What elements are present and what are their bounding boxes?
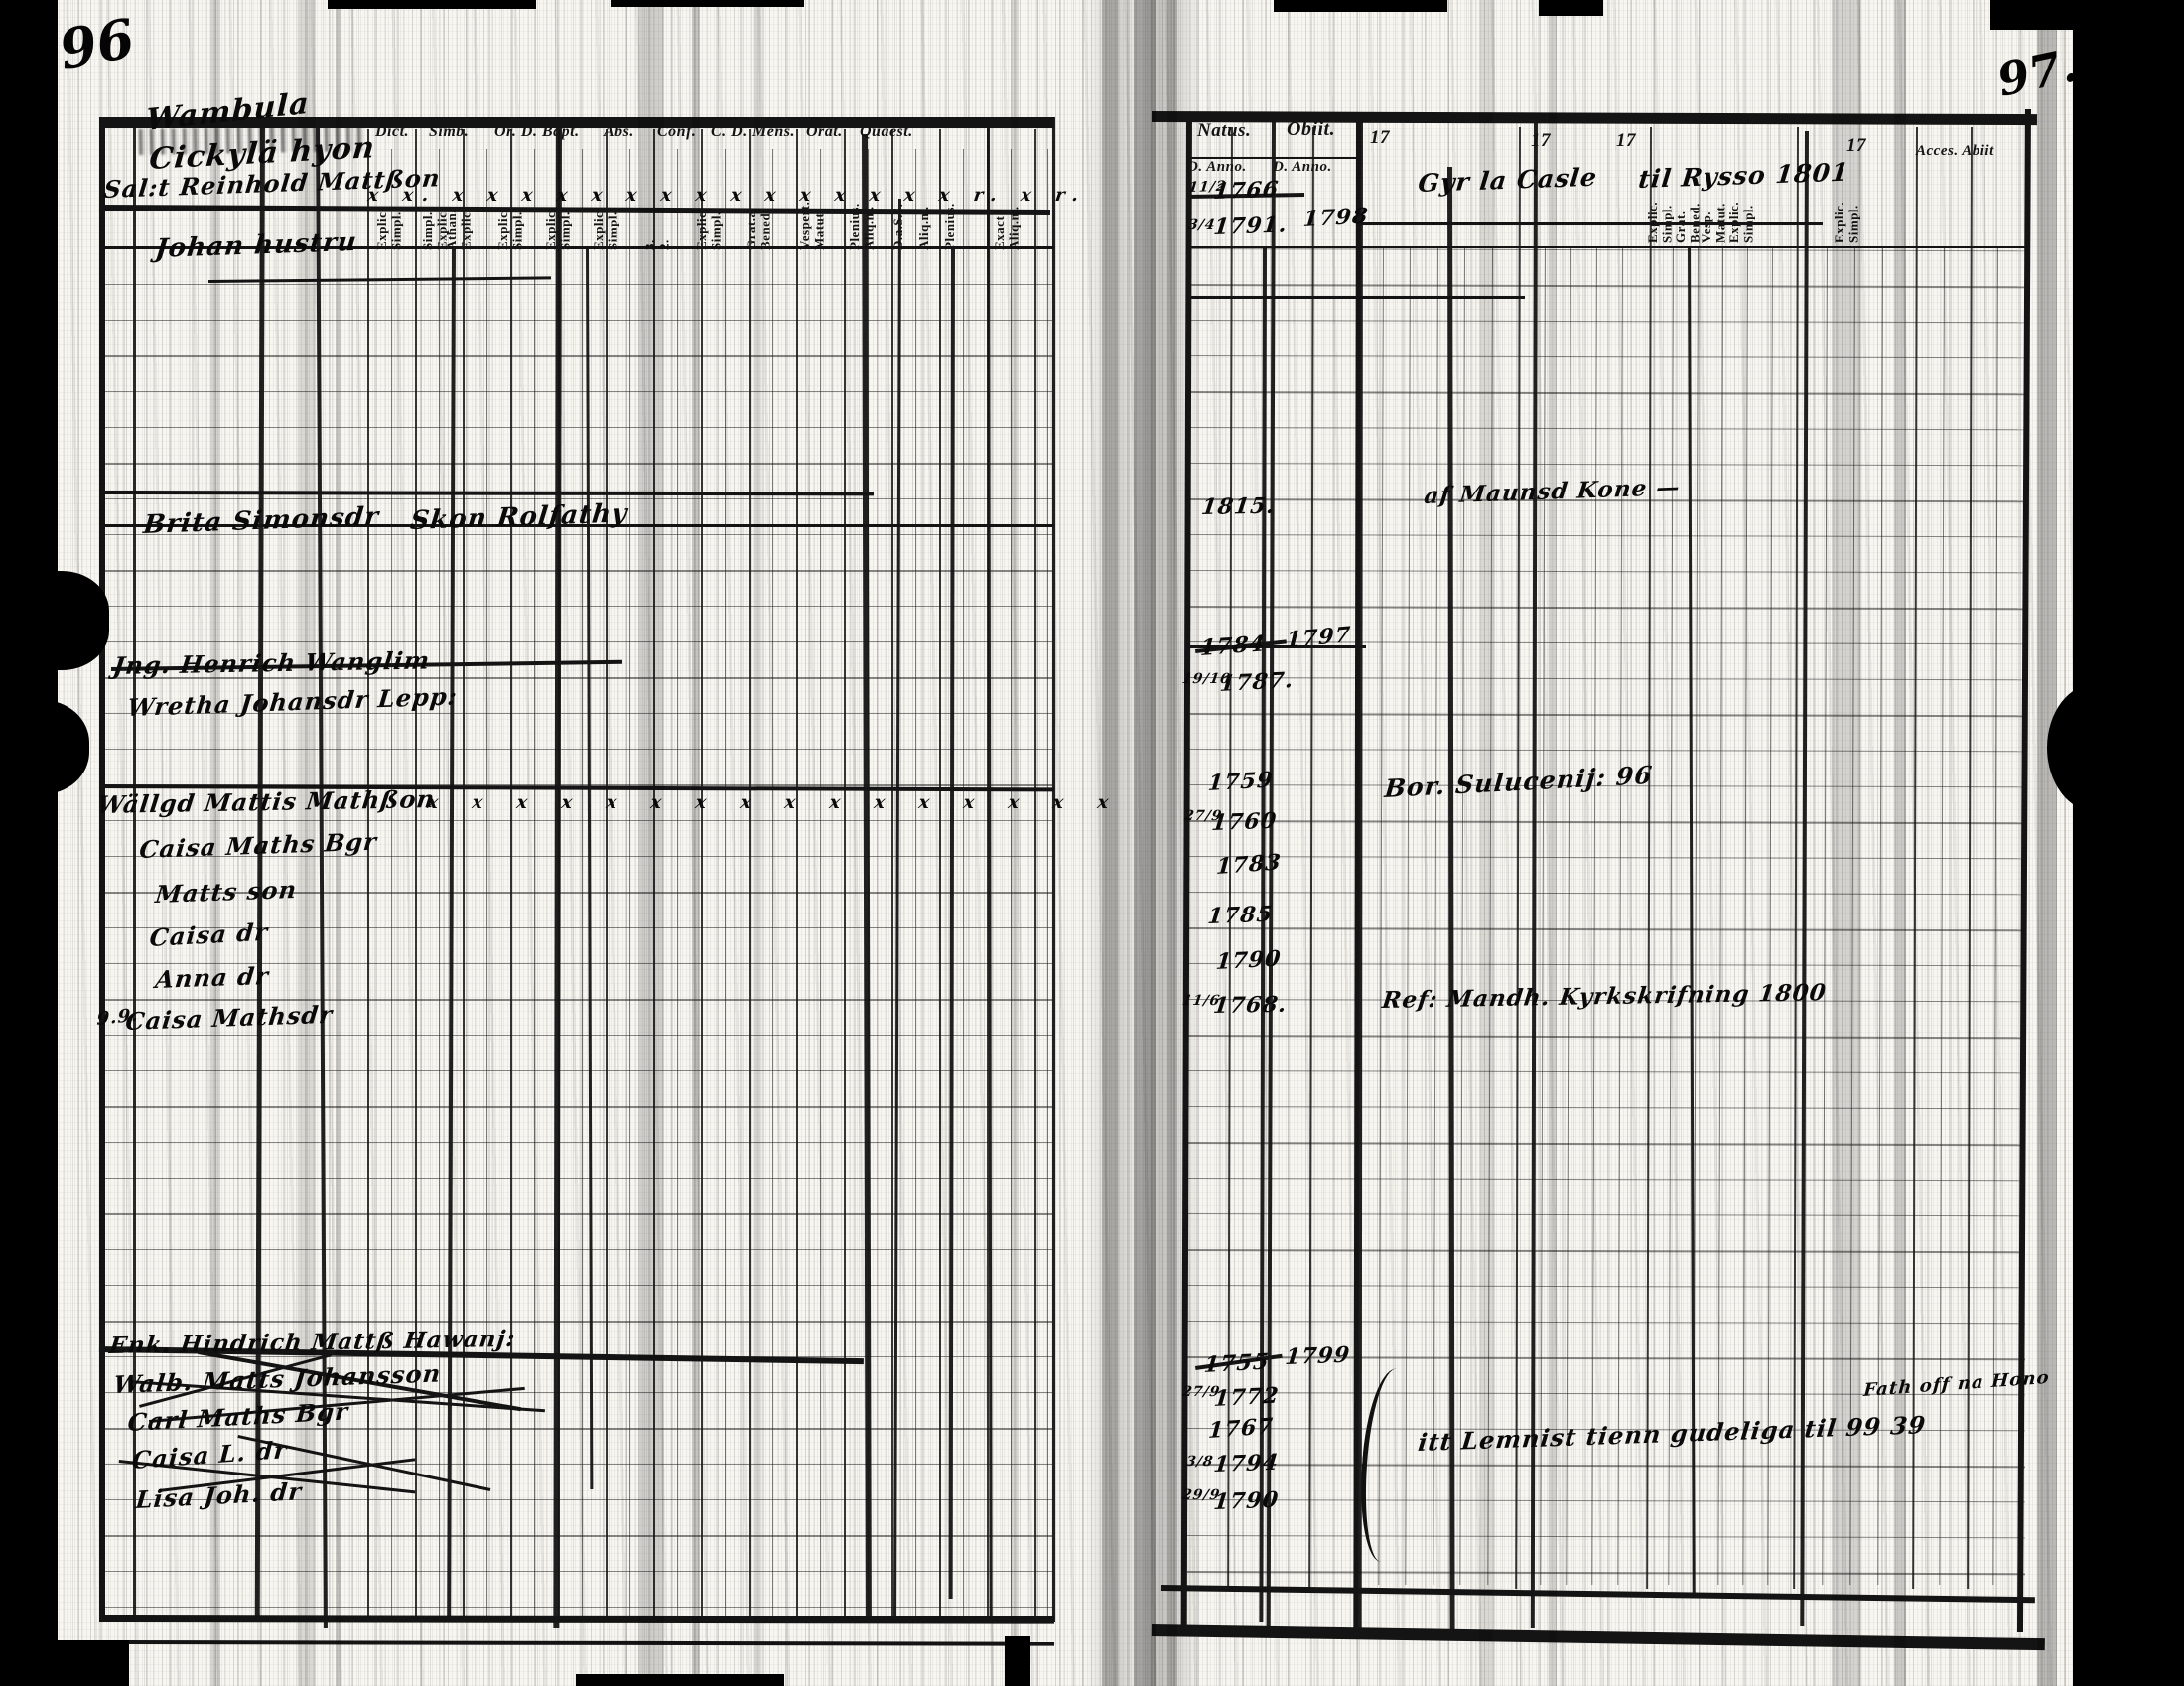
grid-line-horizontal: [99, 1106, 1052, 1108]
corner-header: Acces. Abiit: [1916, 143, 1994, 160]
ink-blob: [1005, 1636, 1030, 1686]
handwritten-entry: 1768.: [1212, 992, 1289, 1019]
grid-line-vertical: [367, 129, 369, 1618]
grid-line-horizontal: [99, 498, 1052, 499]
handwritten-entry: 1767: [1207, 1413, 1275, 1443]
grid-line-horizontal: [1187, 296, 1525, 299]
texture-bar: [298, 0, 316, 1686]
grid-line-horizontal: [99, 1571, 1052, 1572]
handwritten-entry: 1787.: [1219, 667, 1296, 697]
grid-line-vertical: [486, 149, 487, 1618]
handwritten-entry: 1772: [1213, 1383, 1281, 1412]
left-folio-number: 96: [55, 6, 139, 81]
grid-line-horizontal: [99, 1070, 1052, 1071]
ink-blob: [0, 0, 58, 1686]
grid-line-horizontal: [99, 1321, 1052, 1323]
handwritten-entry: 1785: [1206, 902, 1274, 929]
subcolumn-header: D. Anno.: [1273, 159, 1332, 176]
ink-blob: [0, 700, 89, 794]
ink-blob: [1274, 0, 1447, 12]
column-header: Obiit.: [1287, 118, 1335, 141]
grid-line-horizontal: [99, 1035, 1052, 1036]
column-header: Dict.: [375, 123, 409, 141]
ink-blob: [0, 1640, 129, 1686]
texture-bar: [210, 0, 220, 1686]
handwritten-entry: 1815.: [1200, 493, 1277, 520]
texture-bar: [1479, 0, 1493, 1686]
grid-line-vertical: [963, 149, 964, 1618]
grid-line-vertical: [534, 149, 535, 1618]
texture-bar: [754, 0, 760, 1686]
ink-blob: [2073, 0, 2184, 1686]
grid-line-horizontal: [99, 1615, 1054, 1624]
texture-bar: [1549, 0, 1557, 1686]
texture-bar: [336, 0, 341, 1686]
grid-line-horizontal: [99, 1178, 1052, 1179]
handwritten-entry: 1798: [1302, 204, 1370, 232]
grid-line-vertical: [1034, 129, 1036, 1618]
column-header: Simb.: [429, 123, 469, 141]
grid-line-horizontal: [99, 391, 1052, 392]
texture-bar: [692, 0, 700, 1686]
handwritten-entry: 1760: [1210, 808, 1278, 836]
grid-line-vertical: [1047, 149, 1048, 1618]
ink-blob: [576, 1674, 784, 1686]
column-header: 17: [1370, 127, 1390, 149]
grid-line-horizontal: [99, 999, 1052, 1001]
grid-line-horizontal: [99, 1142, 1052, 1143]
grid-line-horizontal: [99, 1249, 1052, 1250]
grid-line-vertical: [99, 117, 105, 1622]
grid-line-horizontal: [99, 1285, 1052, 1286]
handwritten-entry: 1790: [1212, 1487, 1280, 1515]
texture-bar: [1894, 0, 1906, 1686]
handwritten-entry: 1791.: [1212, 211, 1289, 240]
column-header: 17: [1616, 130, 1636, 152]
handwritten-entry: 1755: [1203, 1349, 1271, 1378]
column-header: Or. D. Bapt.: [494, 123, 580, 141]
grid-line-horizontal: [99, 820, 1052, 821]
texture-bar: [2037, 0, 2057, 1686]
column-header: Natus.: [1197, 120, 1251, 142]
grid-line-vertical: [891, 129, 893, 1618]
texture-bar: [1134, 0, 1156, 1686]
grid-line-horizontal: [99, 570, 1052, 572]
texture-bar: [1011, 0, 1019, 1686]
handwritten-entry: 1784: [1199, 631, 1267, 660]
handwritten-entry: 1766: [1212, 177, 1280, 205]
grid-line-vertical: [1052, 117, 1055, 1622]
grid-line-vertical: [677, 149, 678, 1618]
texture-bar: [1167, 0, 1177, 1686]
grid-line-horizontal: [99, 355, 1052, 357]
handwritten-entry: Jng. Henrich Wanglim: [111, 645, 431, 680]
grid-line-vertical: [606, 129, 608, 1618]
grid-line-horizontal: [99, 1607, 1052, 1608]
grid-line-vertical: [582, 149, 583, 1618]
handwritten-entry: x x. x x x x x x x x x x x x x x x r. x …: [366, 185, 1089, 206]
handwritten-entry: 1790: [1215, 946, 1283, 975]
handwritten-entry: 1799: [1284, 1342, 1351, 1370]
texture-bar: [1832, 0, 1861, 1686]
grid-line-vertical: [510, 129, 512, 1618]
grid-line-vertical: [915, 149, 916, 1618]
handwritten-entry: Wällgd Mattis Mathßon: [95, 784, 437, 819]
grid-line-horizontal: [99, 284, 1052, 285]
handwritten-entry: 3/8: [1185, 1454, 1215, 1470]
handwritten-entry: 1783: [1215, 849, 1283, 879]
grid-line-vertical: [772, 149, 773, 1618]
grid-line-vertical: [415, 129, 417, 1618]
column-header: Orat.: [806, 123, 843, 141]
grid-line-vertical: [939, 129, 941, 1618]
scanned-register-spread: 96 97. Dict.Simb.Or. D. Bapt.Abs.Conf.C.…: [0, 0, 2184, 1686]
grid-line-horizontal: [99, 641, 1052, 642]
handwritten-entry: 1794: [1212, 1450, 1280, 1477]
grid-line-horizontal: [99, 1535, 1052, 1537]
column-header: Quaest.: [860, 123, 913, 141]
handwritten-entry: 1759: [1207, 768, 1275, 796]
grid-line-vertical: [629, 149, 630, 1618]
subcolumn-header: D. Anno.: [1187, 159, 1247, 176]
grid-line-horizontal: [99, 463, 1052, 465]
column-header: Abs.: [604, 123, 634, 141]
column-header: 17: [1531, 130, 1551, 152]
texture-bar: [638, 0, 664, 1686]
texture-bar: [1102, 0, 1118, 1686]
ink-blob: [328, 0, 536, 9]
ink-blob: [0, 571, 109, 670]
grid-line-horizontal: [99, 427, 1052, 428]
grid-line-vertical: [820, 149, 821, 1618]
grid-line-vertical: [844, 129, 846, 1618]
grid-line-horizontal: [99, 749, 1052, 750]
grid-line-vertical: [796, 129, 798, 1618]
grid-line-vertical: [439, 149, 440, 1618]
ink-blob: [2047, 683, 2146, 812]
handwritten-entry: x x x x x x x x x x x x x x x x: [426, 792, 1124, 813]
handwritten-entry: 9.9.: [96, 1005, 139, 1030]
grid-line-vertical: [725, 149, 726, 1618]
column-header: C. D.: [711, 123, 748, 141]
grid-line-horizontal: [99, 320, 1052, 321]
ink-blob: [1539, 0, 1603, 16]
grid-line-horizontal: [99, 1213, 1052, 1215]
ink-blob: [1990, 0, 2080, 30]
handwritten-entry: 3/4: [1187, 217, 1217, 233]
ink-blob: [611, 0, 804, 7]
grid-line-vertical: [749, 129, 751, 1618]
grid-line-vertical: [701, 129, 703, 1618]
grid-line-horizontal: [99, 606, 1052, 607]
handwritten-entry: Matts son: [154, 875, 299, 909]
